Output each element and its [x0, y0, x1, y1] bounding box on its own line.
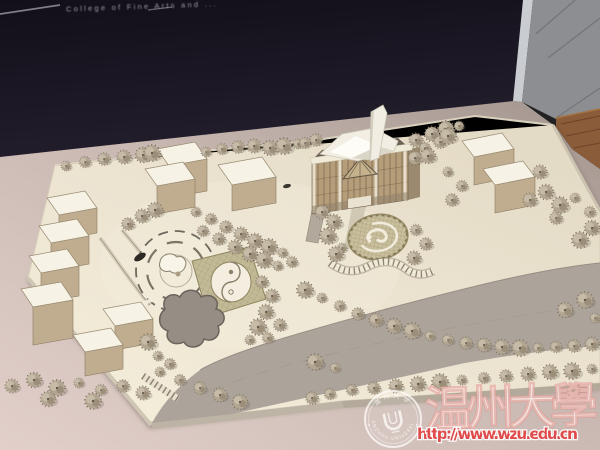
plaza-pool — [160, 254, 186, 273]
photo-canvas: College of Fine Arts and ... — [0, 0, 600, 450]
watermark-url: http://www.wzu.edu.cn — [417, 425, 578, 443]
exhibition-photo: College of Fine Arts and ... — [0, 0, 600, 450]
pond — [160, 290, 225, 347]
university-seal: 温州大学 WENZHOU UNIVERSITY — [365, 391, 421, 447]
block-front-face — [33, 300, 73, 345]
